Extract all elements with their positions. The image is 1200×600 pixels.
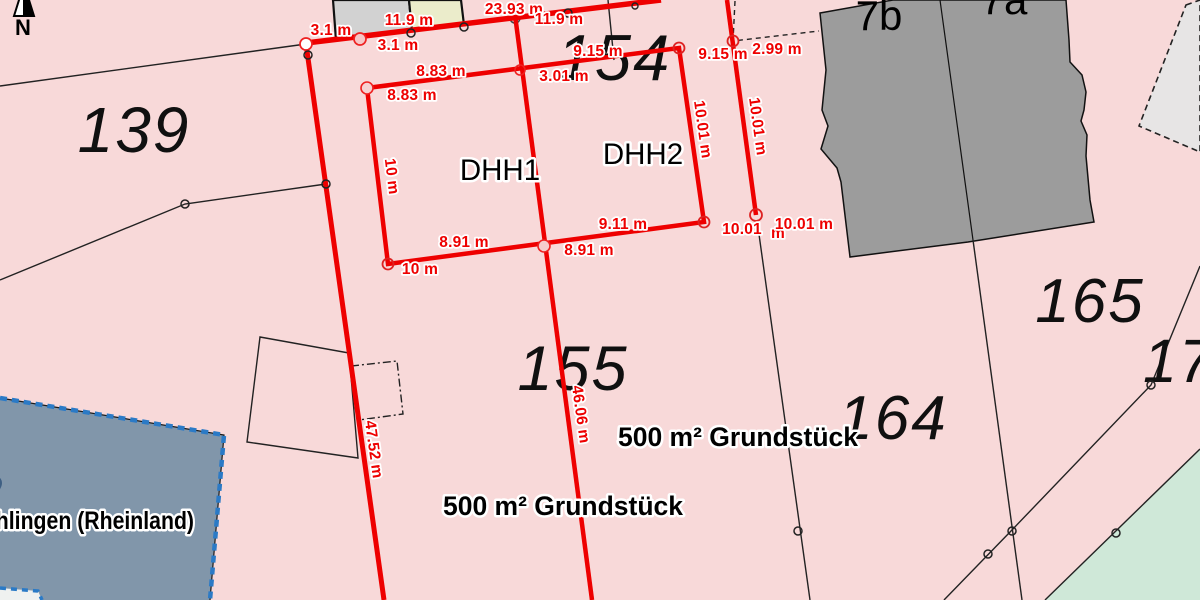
svg-text:9.15 m: 9.15 m	[573, 43, 622, 60]
svg-text:3.1 m: 3.1 m	[311, 22, 352, 39]
svg-text:8.91 m: 8.91 m	[564, 242, 613, 259]
svg-text:17: 17	[1143, 327, 1200, 395]
svg-text:500 m² Grundstück: 500 m² Grundstück	[618, 422, 858, 452]
svg-text:8.83 m: 8.83 m	[387, 87, 436, 104]
svg-text:3.01 m: 3.01 m	[539, 68, 588, 85]
svg-text:500 m² Grundstück: 500 m² Grundstück	[443, 491, 683, 521]
svg-text:3.1 m: 3.1 m	[378, 37, 419, 54]
svg-text:11.9 m: 11.9 m	[385, 12, 434, 29]
svg-text:139: 139	[78, 94, 191, 166]
svg-text:9.11 m: 9.11 m	[599, 216, 648, 233]
svg-text:DHH1: DHH1	[460, 154, 540, 187]
svg-text:8.83 m: 8.83 m	[416, 63, 465, 80]
svg-text:165: 165	[1035, 267, 1144, 336]
svg-text:10 m: 10 m	[402, 261, 438, 278]
svg-text:9.15 m: 9.15 m	[698, 46, 747, 63]
svg-text:DHH2: DHH2	[603, 138, 683, 171]
svg-text:10.01: 10.01	[722, 221, 762, 238]
svg-text:2.99 m: 2.99 m	[752, 41, 801, 58]
svg-text:chlingen (Rheinland): chlingen (Rheinland)	[0, 507, 194, 535]
svg-text:8.91 m: 8.91 m	[439, 234, 488, 251]
svg-text:11.9 m: 11.9 m	[535, 11, 584, 28]
svg-text:10.01 m: 10.01 m	[775, 216, 833, 233]
svg-text:7a: 7a	[981, 0, 1028, 23]
svg-text:7b: 7b	[856, 0, 903, 39]
svg-text:N: N	[15, 15, 31, 40]
